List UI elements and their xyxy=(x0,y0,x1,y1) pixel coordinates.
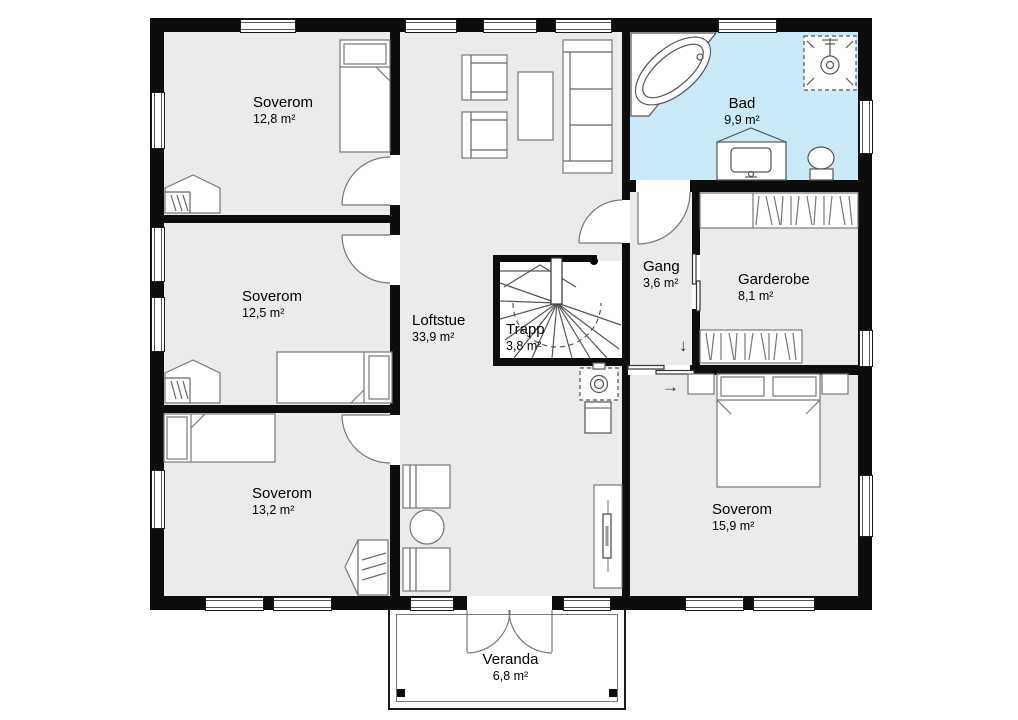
room-label-trapp: Trapp 3,8 m² xyxy=(506,321,545,354)
entry-direction-arrow: → xyxy=(662,377,679,397)
room-label-soverom1: Soverom 12,8 m² xyxy=(253,94,313,127)
chimney xyxy=(580,363,618,400)
armchair xyxy=(462,55,507,100)
double-bed xyxy=(717,374,820,487)
swing-door-bad xyxy=(638,192,690,244)
room-name: Garderobe xyxy=(738,271,810,289)
single-bed xyxy=(277,352,392,403)
room-name: Soverom xyxy=(242,288,302,306)
swing-door-soverom3 xyxy=(342,415,390,463)
floor-plan: Soverom 12,8 m² Soverom 12,5 m² Soverom … xyxy=(0,0,1018,720)
coffee-table xyxy=(518,72,553,140)
dining-chair xyxy=(403,465,450,508)
round-table xyxy=(410,510,444,544)
room-area: 6,8 m² xyxy=(468,669,553,684)
fixtures-layer xyxy=(0,0,1018,720)
room-area: 12,5 m² xyxy=(242,306,302,321)
tv-bench xyxy=(594,485,622,588)
room-label-bad: Bad 9,9 m² xyxy=(712,95,772,128)
room-name: Veranda xyxy=(468,651,553,669)
shower xyxy=(804,36,856,90)
swing-door-soverom2 xyxy=(342,235,390,283)
room-label-soverom4: Soverom 15,9 m² xyxy=(712,501,772,534)
toilet xyxy=(808,147,834,180)
room-name: Bad xyxy=(712,95,772,113)
room-area: 13,2 m² xyxy=(252,503,312,518)
room-area: 3,8 m² xyxy=(506,339,545,354)
room-label-veranda: Veranda 6,8 m² xyxy=(468,651,553,684)
room-area: 33,9 m² xyxy=(412,330,465,345)
vanity-sink xyxy=(717,128,786,180)
room-name: Soverom xyxy=(712,501,772,519)
wood-stove xyxy=(585,402,611,433)
closet-shelves xyxy=(700,330,802,363)
french-doors-veranda xyxy=(467,610,552,653)
room-name: Trapp xyxy=(506,321,545,339)
wardrobe xyxy=(165,360,220,403)
room-area: 3,6 m² xyxy=(643,276,680,291)
wardrobe xyxy=(165,175,220,213)
room-name: Gang xyxy=(643,258,680,276)
swing-door-gang-loftstue xyxy=(579,200,622,243)
room-name: Loftstue xyxy=(412,312,465,330)
room-label-gang: Gang 3,6 m² xyxy=(643,258,680,291)
nightstand xyxy=(688,374,714,394)
single-bed xyxy=(164,414,275,462)
room-area: 15,9 m² xyxy=(712,519,772,534)
dining-chair xyxy=(403,548,450,591)
room-label-loftstue: Loftstue 33,9 m² xyxy=(412,312,465,345)
nightstand xyxy=(822,374,848,394)
room-label-soverom2: Soverom 12,5 m² xyxy=(242,288,302,321)
room-name: Soverom xyxy=(252,485,312,503)
sofa xyxy=(563,40,612,173)
room-label-garderobe: Garderobe 8,1 m² xyxy=(738,271,810,304)
stair-direction-arrow: ↓ xyxy=(679,336,688,356)
wardrobe xyxy=(345,540,388,595)
sliding-door-soverom4 xyxy=(628,366,694,375)
swing-door-soverom1 xyxy=(342,157,390,205)
corner-bathtub xyxy=(624,24,723,117)
room-label-soverom3: Soverom 13,2 m² xyxy=(252,485,312,518)
armchair xyxy=(462,112,507,158)
closet-shelves xyxy=(700,193,858,228)
room-name: Soverom xyxy=(253,94,313,112)
sliding-door-garderobe xyxy=(693,254,701,311)
single-bed xyxy=(340,40,390,152)
room-area: 12,8 m² xyxy=(253,112,313,127)
room-area: 9,9 m² xyxy=(712,113,772,128)
room-area: 8,1 m² xyxy=(738,289,810,304)
